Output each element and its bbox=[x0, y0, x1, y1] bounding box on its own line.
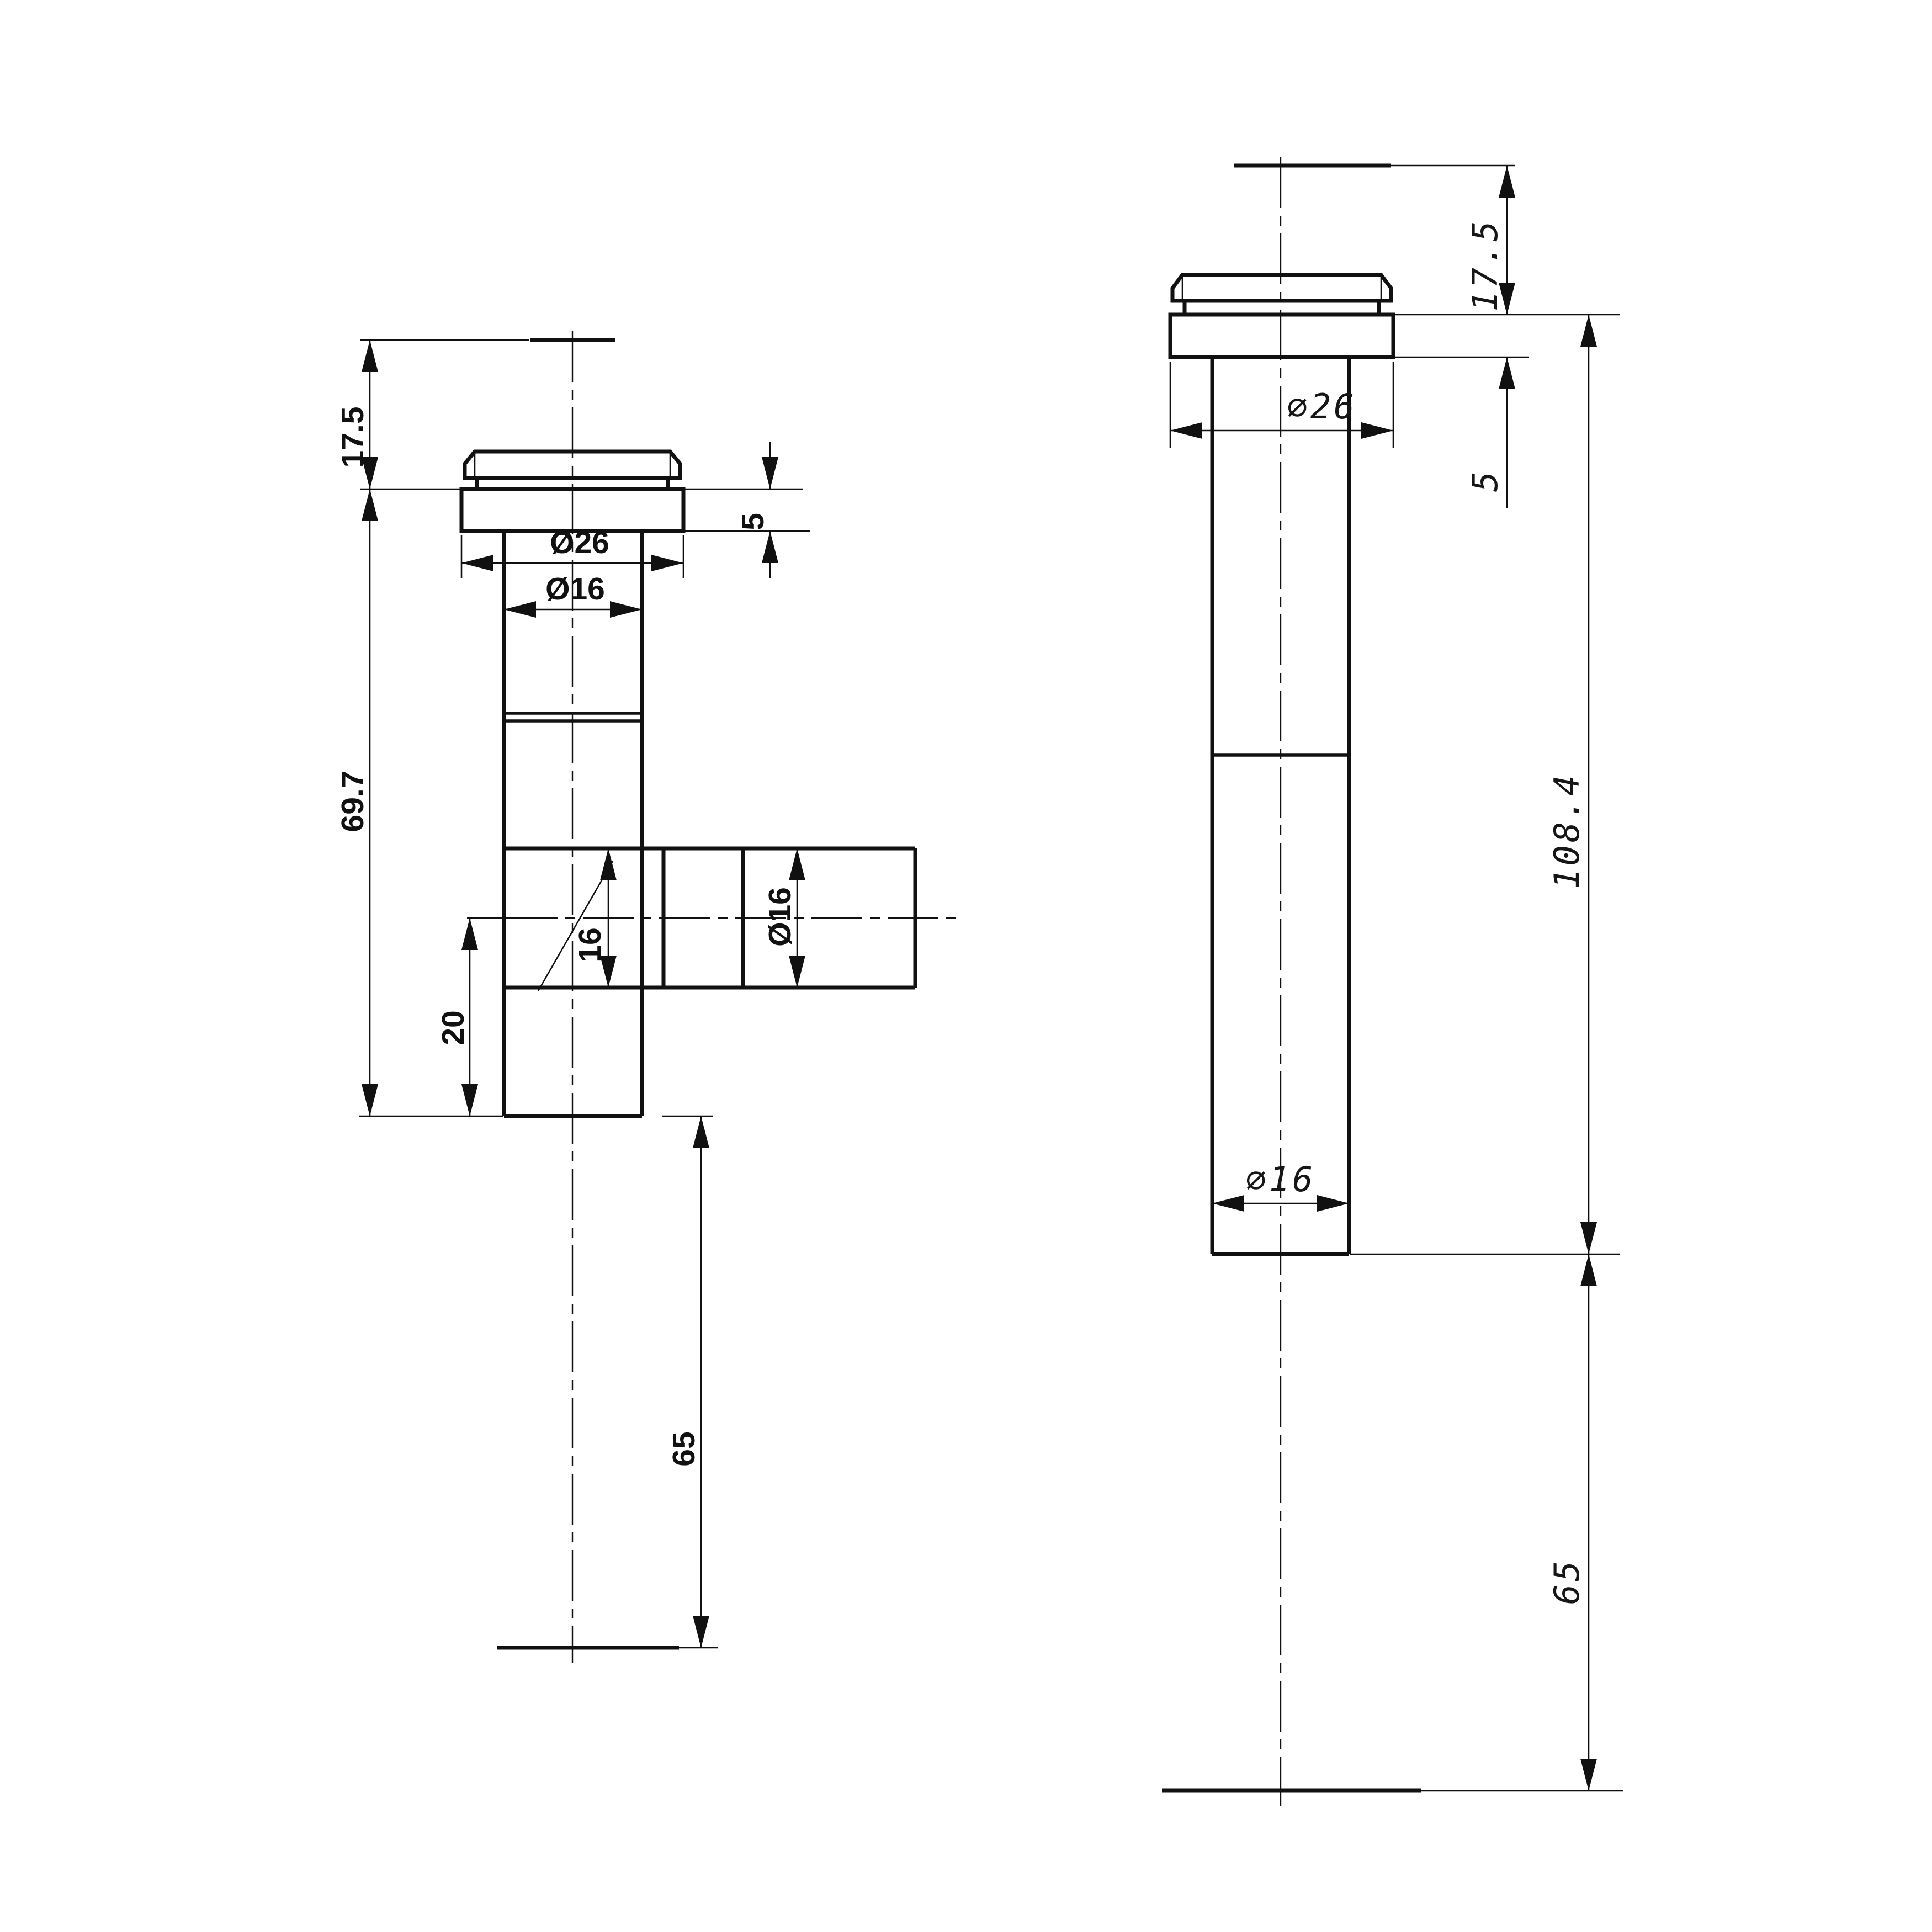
dim-front-tail-offset: 20 bbox=[436, 918, 471, 1116]
dim-side-flange-diameter: ∅26 bbox=[1170, 386, 1393, 431]
dim-front-tube-diameter: Ø16 bbox=[504, 571, 642, 609]
side-view: 17.5 5 ∅26 108.4 ∅16 65 bbox=[1162, 157, 1623, 1806]
dim-label-front-branch-diameter: Ø16 bbox=[762, 887, 798, 947]
dim-label-side-top-height: 17.5 bbox=[1465, 218, 1505, 311]
front-view: 17.5 69.7 5 Ø26 Ø16 16 Ø16 20 bbox=[335, 331, 961, 1663]
dim-front-tail-length: 65 bbox=[666, 1116, 702, 1648]
dim-label-side-tail-length: 65 bbox=[1547, 1558, 1587, 1605]
dim-front-flange-thickness: 5 bbox=[735, 442, 771, 578]
dim-label-side-flange-diameter: ∅26 bbox=[1287, 386, 1357, 427]
dim-label-front-tail-offset: 20 bbox=[436, 1010, 471, 1045]
dim-label-front-flange-diameter: Ø26 bbox=[550, 525, 609, 560]
front-section-slash bbox=[538, 861, 613, 991]
drawing-canvas: 17.5 69.7 5 Ø26 Ø16 16 Ø16 20 bbox=[0, 0, 1932, 1932]
dim-label-side-flange-thickness: 5 bbox=[1465, 469, 1505, 492]
dim-label-side-total-length: 108.4 bbox=[1547, 772, 1587, 889]
cad-drawing-page: 17.5 69.7 5 Ø26 Ø16 16 Ø16 20 bbox=[0, 0, 1932, 1932]
dim-label-front-top-height: 17.5 bbox=[335, 407, 370, 468]
dim-label-side-tube-diameter: ∅16 bbox=[1246, 1159, 1316, 1199]
side-flange bbox=[1170, 315, 1393, 357]
dim-label-front-tube-diameter: Ø16 bbox=[545, 571, 605, 607]
dim-side-tail-length: 65 bbox=[1547, 1254, 1589, 1791]
dim-side-total-length: 108.4 bbox=[1547, 315, 1589, 1254]
side-cap-outline bbox=[1172, 275, 1391, 301]
dim-label-front-branch-bore: 16 bbox=[572, 927, 608, 962]
side-view-extension-lines bbox=[1170, 166, 1623, 1791]
dim-side-tube-diameter: ∅16 bbox=[1212, 1159, 1349, 1203]
dim-side-flange-thickness: 5 bbox=[1465, 357, 1507, 508]
dim-front-top-height: 17.5 bbox=[335, 340, 370, 489]
dim-front-branch-diameter: Ø16 bbox=[762, 848, 798, 988]
dim-label-front-body-length: 69.7 bbox=[335, 771, 370, 832]
dim-side-top-height: 17.5 bbox=[1465, 166, 1507, 315]
dim-label-front-flange-thickness: 5 bbox=[735, 513, 771, 530]
dim-label-front-tail-length: 65 bbox=[666, 1431, 702, 1466]
dim-front-body-length: 69.7 bbox=[335, 489, 370, 1116]
